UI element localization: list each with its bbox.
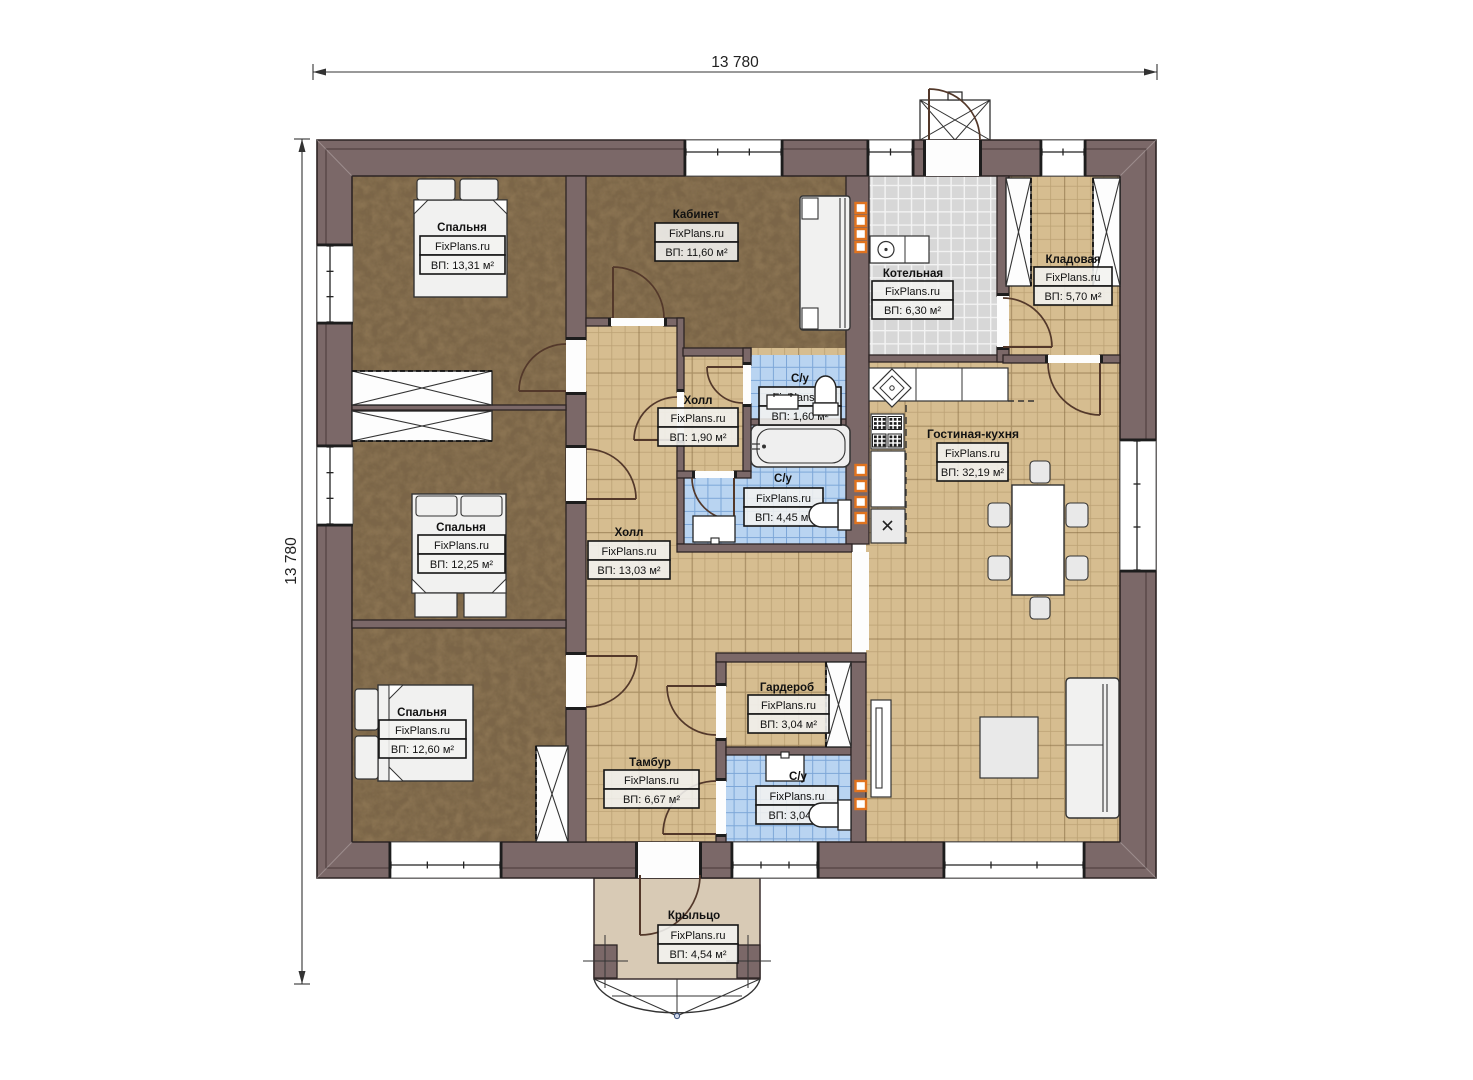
svg-text:ВП: 4,45 м²: ВП: 4,45 м² — [755, 512, 812, 524]
svg-text:Гардероб: Гардероб — [760, 682, 814, 694]
svg-text:С/у: С/у — [791, 373, 810, 385]
svg-text:FixPlans.ru: FixPlans.ru — [669, 228, 724, 240]
svg-text:13 780: 13 780 — [711, 54, 759, 71]
svg-text:Крыльцо: Крыльцо — [668, 910, 720, 922]
svg-text:ВП: 6,67 м²: ВП: 6,67 м² — [623, 794, 680, 806]
svg-text:ВП: 12,60 м²: ВП: 12,60 м² — [391, 744, 455, 756]
svg-text:FixPlans.ru: FixPlans.ru — [624, 775, 679, 787]
svg-text:Котельная: Котельная — [883, 268, 943, 280]
svg-text:ВП: 4,54 м²: ВП: 4,54 м² — [669, 949, 726, 961]
svg-text:Спальня: Спальня — [397, 707, 447, 719]
svg-text:Кладовая: Кладовая — [1045, 254, 1100, 266]
svg-text:FixPlans.ru: FixPlans.ru — [670, 413, 725, 425]
svg-text:ВП: 5,70 м²: ВП: 5,70 м² — [1044, 291, 1101, 303]
svg-text:FixPlans.ru: FixPlans.ru — [769, 791, 824, 803]
svg-text:FixPlans.ru: FixPlans.ru — [761, 700, 816, 712]
svg-text:ВП: 1,90 м²: ВП: 1,90 м² — [669, 432, 726, 444]
svg-text:FixPlans.ru: FixPlans.ru — [756, 493, 811, 505]
svg-text:FixPlans.ru: FixPlans.ru — [885, 286, 940, 298]
svg-text:Тамбур: Тамбур — [629, 757, 671, 769]
svg-text:FixPlans.ru: FixPlans.ru — [395, 725, 450, 737]
svg-text:ВП: 13,31 м²: ВП: 13,31 м² — [431, 260, 495, 272]
svg-text:ВП: 11,60 м²: ВП: 11,60 м² — [665, 247, 728, 259]
svg-text:ВП: 3,04 м²: ВП: 3,04 м² — [760, 719, 817, 731]
svg-text:ВП: 32,19 м²: ВП: 32,19 м² — [941, 467, 1005, 479]
svg-text:ВП: 12,25 м²: ВП: 12,25 м² — [430, 559, 494, 571]
svg-text:Кабинет: Кабинет — [673, 209, 720, 221]
svg-text:13 780: 13 780 — [283, 537, 300, 585]
svg-text:С/у: С/у — [789, 771, 808, 783]
svg-text:С/у: С/у — [774, 473, 793, 485]
svg-text:FixPlans.ru: FixPlans.ru — [434, 540, 489, 552]
svg-text:FixPlans.ru: FixPlans.ru — [435, 241, 490, 253]
svg-text:ВП: 6,30 м²: ВП: 6,30 м² — [884, 305, 941, 317]
svg-text:Холл: Холл — [684, 395, 713, 407]
svg-text:Холл: Холл — [615, 527, 644, 539]
svg-text:FixPlans.ru: FixPlans.ru — [1045, 272, 1100, 284]
svg-text:Спальня: Спальня — [437, 222, 487, 234]
svg-text:Спальня: Спальня — [436, 522, 486, 534]
svg-text:Гостиная-кухня: Гостиная-кухня — [927, 427, 1019, 441]
svg-text:ВП: 13,03 м²: ВП: 13,03 м² — [597, 565, 661, 577]
svg-text:FixPlans.ru: FixPlans.ru — [670, 930, 725, 942]
svg-text:FixPlans.ru: FixPlans.ru — [601, 546, 656, 558]
svg-text:FixPlans.ru: FixPlans.ru — [945, 448, 1000, 460]
